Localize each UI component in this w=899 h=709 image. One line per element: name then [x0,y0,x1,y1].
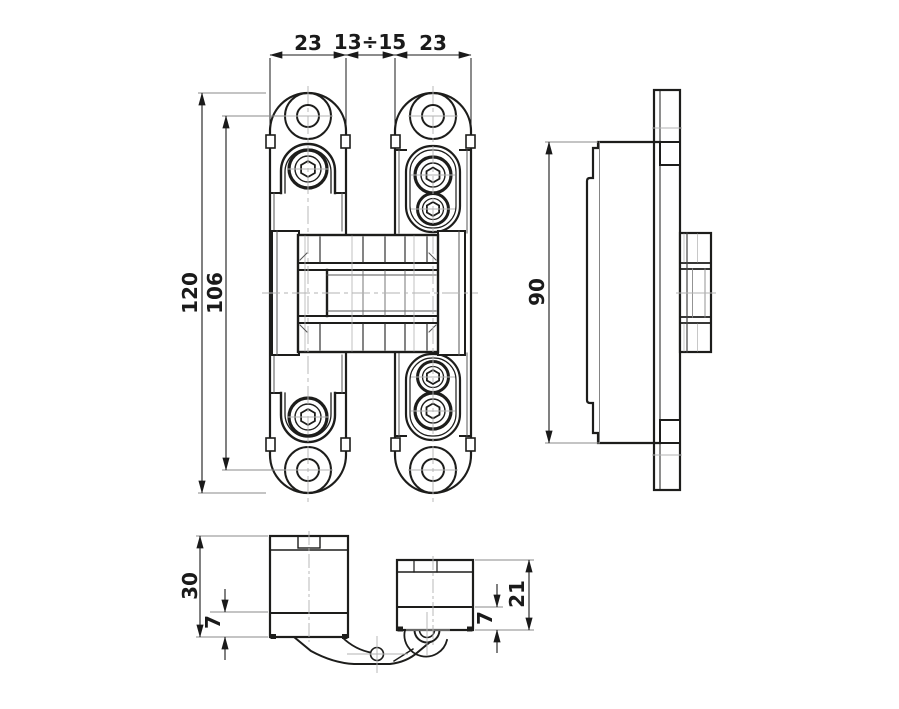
dim-label-center-gap: 13÷15 [334,30,406,54]
knuckle-block [680,233,711,352]
dim-label-left-block-base: 7 [201,615,225,629]
dim-label-total-height: 120 [178,272,202,314]
bottom-cap [660,420,680,443]
technical-drawing-page: 23 13÷15 23 120 106 90 30 7 21 7 [0,0,899,709]
technical-drawing: 23 13÷15 23 120 106 90 30 7 21 7 [0,0,899,709]
dim-label-plate-width-right: 23 [419,31,447,55]
top-cap [660,142,680,165]
mortise-body-outline [587,142,660,443]
dim-label-plate-width-left: 23 [294,31,322,55]
dim-label-side-body-height: 90 [525,278,549,306]
dim-label-right-block-base: 7 [473,611,497,625]
dim-label-left-block-height: 30 [178,572,202,600]
right-body-block [397,560,473,632]
dim-label-right-block-height: 21 [505,580,529,608]
dim-label-hole-spacing: 106 [203,272,227,314]
